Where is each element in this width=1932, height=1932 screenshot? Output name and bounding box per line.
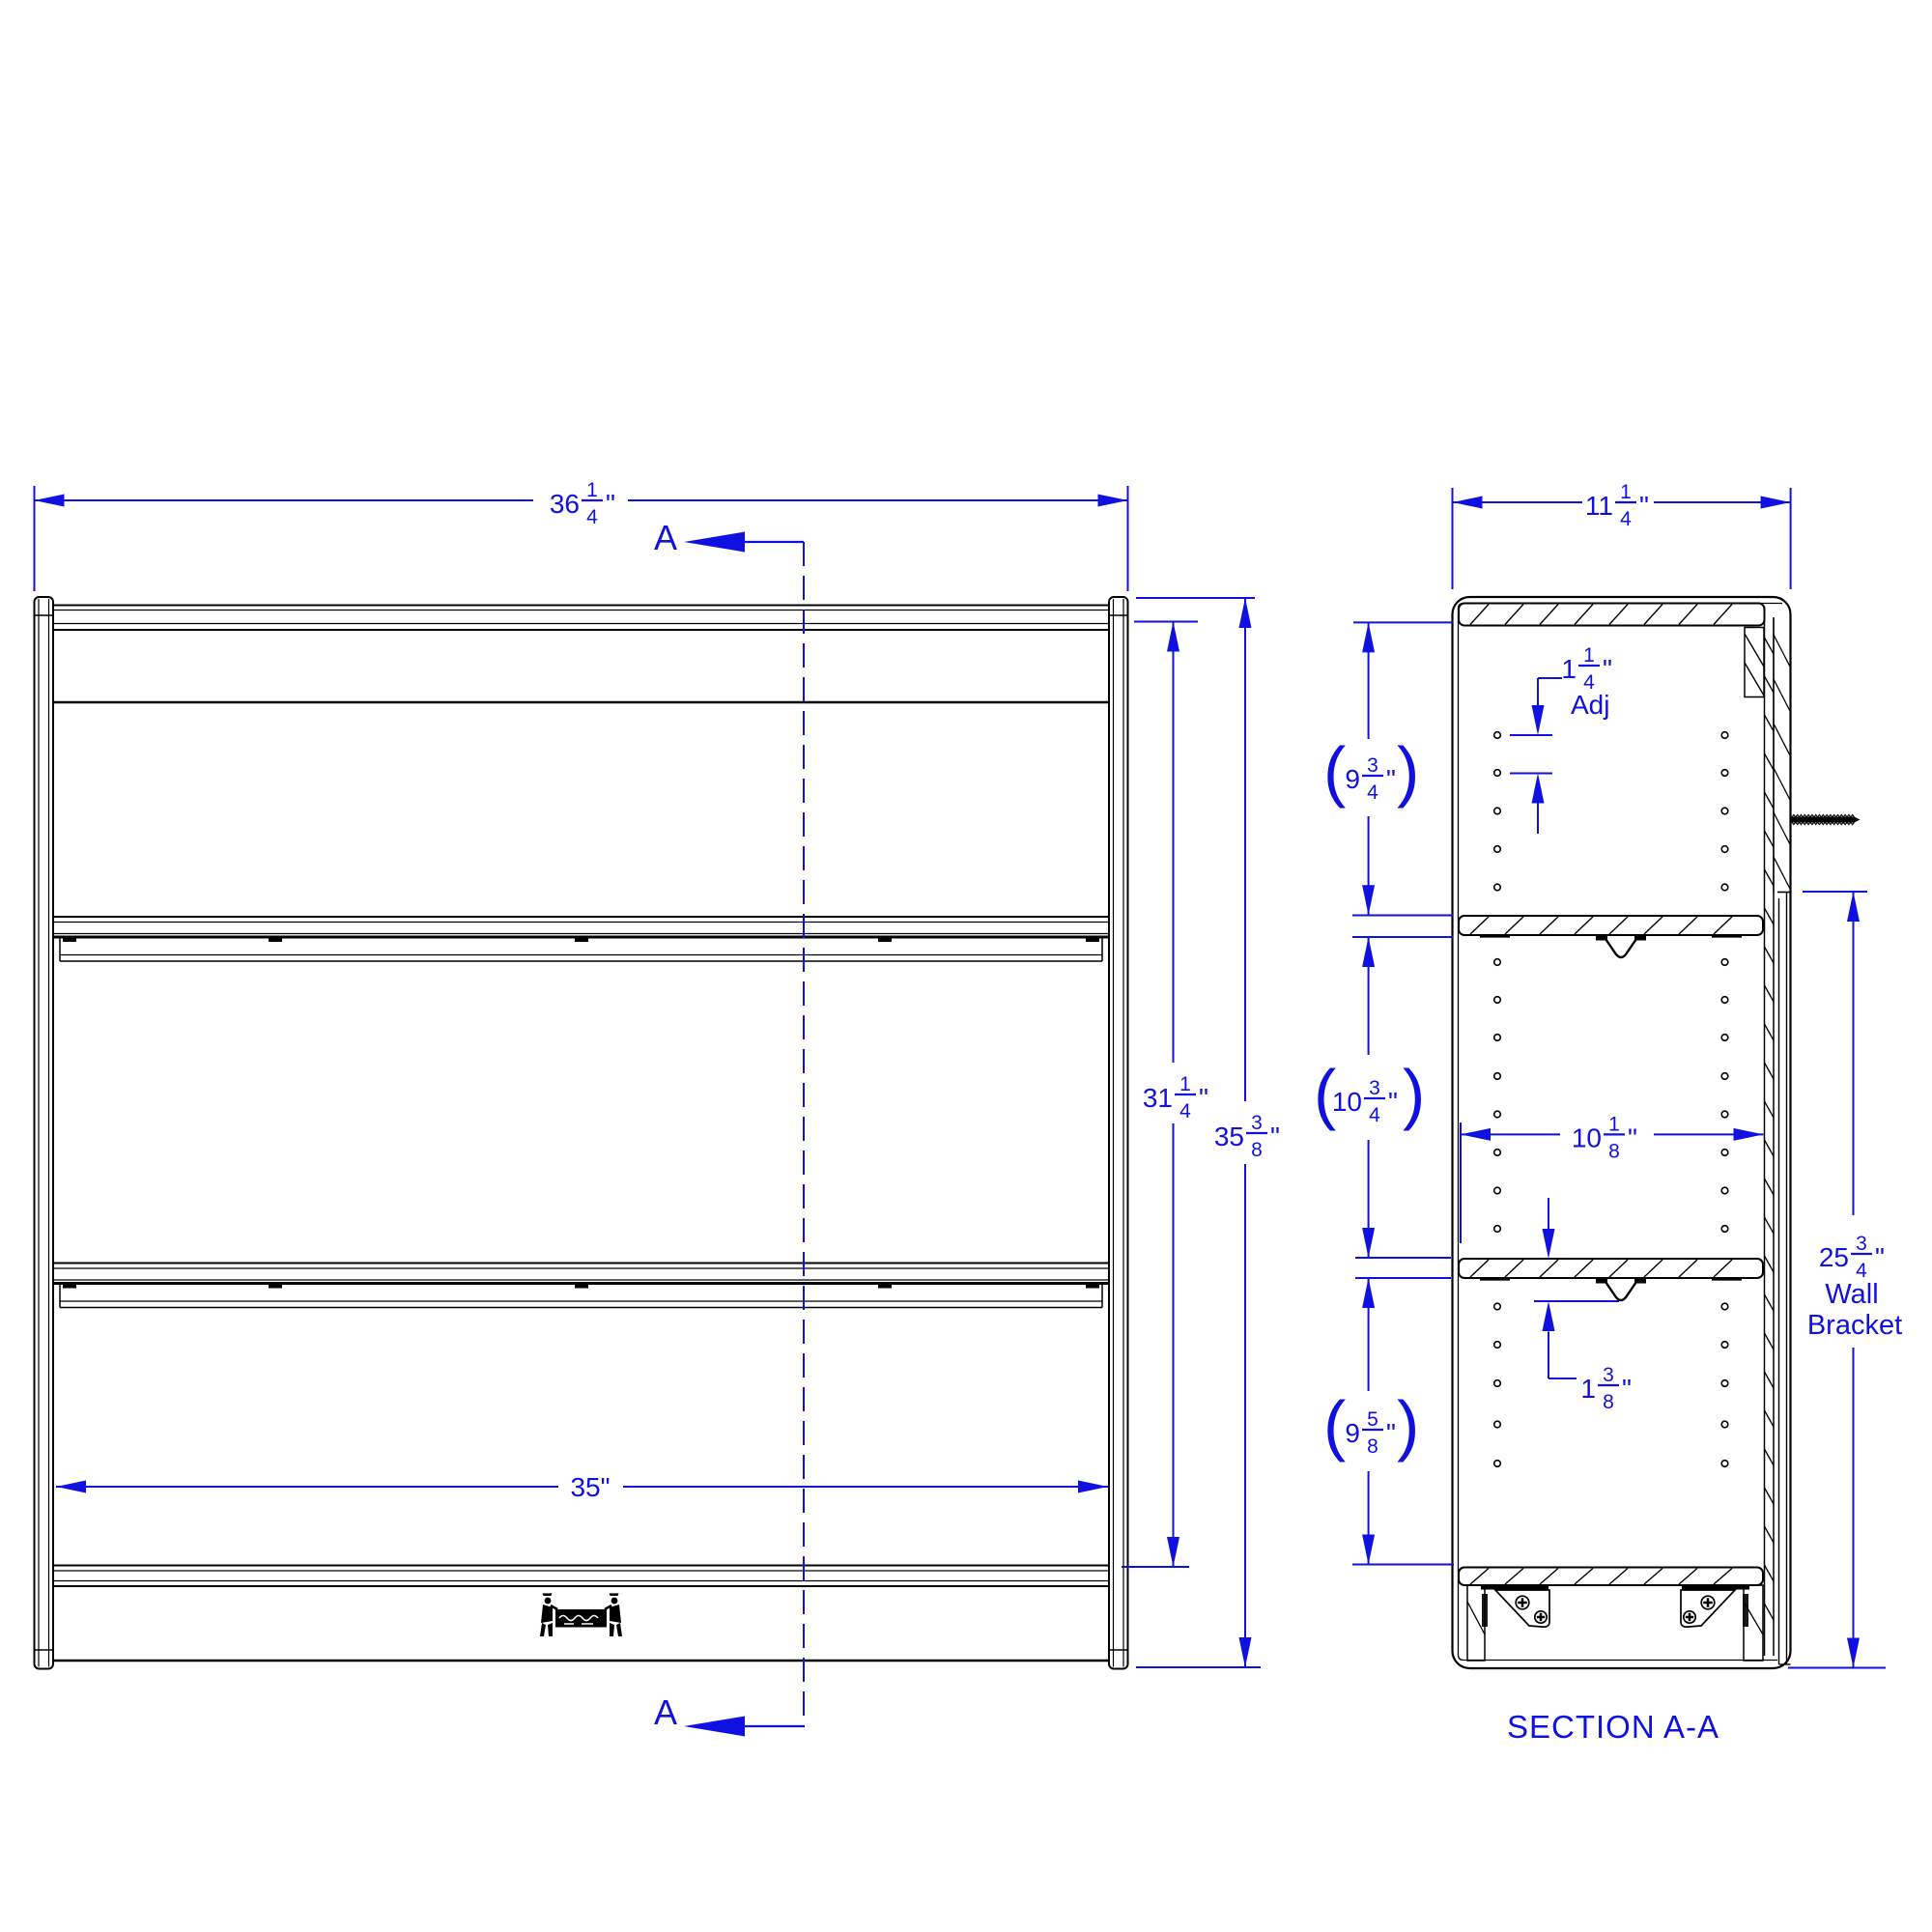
svg-text:4: 4: [1369, 1104, 1380, 1126]
svg-text:1: 1: [586, 479, 598, 501]
svg-text:25: 25: [1819, 1242, 1849, 1272]
svg-text:": ": [606, 489, 615, 519]
svg-text:8: 8: [1603, 1391, 1614, 1413]
svg-text:4: 4: [1620, 508, 1632, 530]
svg-text:): ): [1397, 1387, 1419, 1463]
svg-text:1: 1: [1580, 1374, 1596, 1404]
svg-text:3: 3: [1369, 1077, 1380, 1099]
svg-text:35": 35": [570, 1472, 610, 1502]
svg-text:36: 36: [550, 489, 580, 519]
svg-text:9: 9: [1345, 1418, 1360, 1448]
svg-text:A: A: [654, 518, 677, 557]
svg-text:9: 9: [1345, 764, 1360, 794]
svg-text:": ": [1270, 1122, 1280, 1151]
svg-text:SECTION A-A: SECTION A-A: [1507, 1709, 1719, 1745]
svg-text:3: 3: [1367, 754, 1378, 777]
svg-text:(: (: [1323, 1387, 1346, 1463]
svg-text:Adj: Adj: [1571, 690, 1609, 720]
svg-text:Bracket: Bracket: [1807, 1310, 1902, 1341]
svg-text:5: 5: [1367, 1408, 1378, 1431]
svg-text:": ": [1622, 1374, 1632, 1404]
svg-text:10: 10: [1332, 1087, 1362, 1117]
svg-text:8: 8: [1251, 1139, 1263, 1161]
svg-text:8: 8: [1367, 1435, 1378, 1458]
svg-text:3: 3: [1856, 1233, 1867, 1255]
svg-text:1: 1: [1608, 1113, 1620, 1135]
svg-text:4: 4: [1367, 781, 1378, 804]
svg-text:": ": [1199, 1083, 1208, 1113]
svg-text:1: 1: [1561, 654, 1577, 684]
svg-text:": ": [1628, 1122, 1637, 1152]
svg-text:): ): [1397, 733, 1419, 809]
svg-text:11: 11: [1585, 491, 1613, 521]
svg-text:3: 3: [1603, 1364, 1614, 1386]
svg-text:": ": [1388, 1087, 1398, 1117]
svg-text:4: 4: [586, 506, 598, 528]
svg-text:": ": [1639, 491, 1649, 521]
svg-text:": ": [1603, 654, 1612, 684]
svg-text:A: A: [654, 1692, 677, 1732]
svg-text:1: 1: [1583, 644, 1595, 667]
svg-text:3: 3: [1251, 1112, 1263, 1134]
svg-text:1: 1: [1179, 1073, 1191, 1095]
svg-text:Wall: Wall: [1825, 1279, 1878, 1310]
svg-text:": ": [1386, 764, 1396, 794]
svg-text:35: 35: [1214, 1122, 1244, 1151]
svg-text:": ": [1386, 1418, 1396, 1448]
svg-text:31: 31: [1143, 1083, 1173, 1113]
svg-text:4: 4: [1179, 1100, 1191, 1122]
svg-text:1: 1: [1620, 481, 1632, 503]
svg-text:8: 8: [1608, 1140, 1620, 1162]
svg-text:": ": [1875, 1242, 1885, 1272]
svg-text:10: 10: [1572, 1122, 1602, 1152]
svg-text:(: (: [1323, 733, 1346, 809]
svg-text:): ): [1403, 1056, 1425, 1131]
